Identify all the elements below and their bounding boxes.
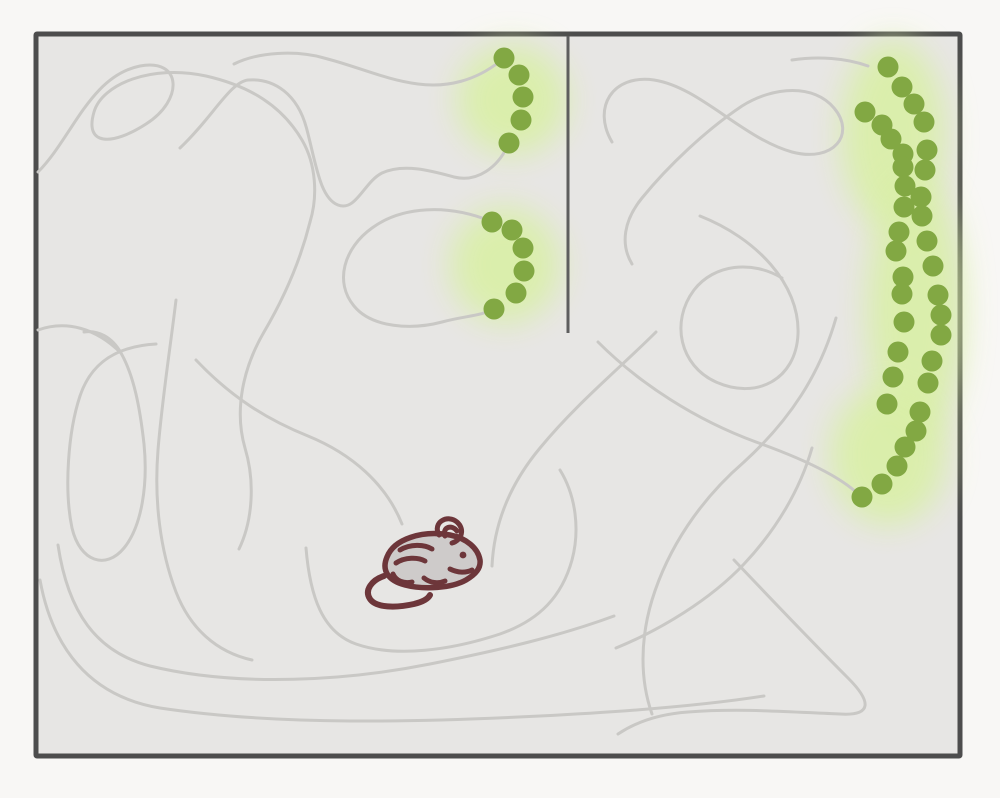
pellet-dot	[931, 305, 952, 326]
pellet-dot	[499, 133, 520, 154]
arena-diagram	[0, 0, 1000, 798]
pellet-dot	[877, 394, 898, 415]
pellet-dot	[893, 157, 914, 178]
pellet-dot	[506, 283, 527, 304]
pellet-dot	[894, 312, 915, 333]
pellet-dot	[892, 284, 913, 305]
pellet-dot	[883, 367, 904, 388]
pellet-dot	[855, 102, 876, 123]
pellet-dot	[514, 261, 535, 282]
pellet-dot	[878, 57, 899, 78]
pellet-dot	[912, 206, 933, 227]
pellet-dot	[895, 437, 916, 458]
pellet-dot	[502, 220, 523, 241]
pellet-dot	[887, 456, 908, 477]
pellet-dot	[928, 285, 949, 306]
pellet-dot	[918, 373, 939, 394]
pellet-dot	[915, 160, 936, 181]
pellet-dot	[852, 487, 873, 508]
pellet-dot	[914, 112, 935, 133]
pellet-dot	[513, 238, 534, 259]
mouse-arena-figure	[0, 0, 1000, 798]
pellet-dot	[494, 48, 515, 69]
pellet-dot	[910, 402, 931, 423]
pellet-dot	[923, 256, 944, 277]
pellet-dot	[889, 222, 910, 243]
pellet-dot	[872, 474, 893, 495]
pellet-dot	[917, 140, 938, 161]
pellet-dot	[886, 241, 907, 262]
pellet-dot	[484, 299, 505, 320]
pellet-dot	[922, 351, 943, 372]
pellet-dot	[917, 231, 938, 252]
pellet-dot	[888, 342, 909, 363]
pellet-dot	[482, 212, 503, 233]
pellet-dot	[892, 77, 913, 98]
pellet-dot	[511, 110, 532, 131]
pellet-dot	[931, 325, 952, 346]
pellet-dot	[513, 87, 534, 108]
pellet-dot	[894, 197, 915, 218]
mouse-eye	[460, 552, 467, 559]
pellet-dot	[509, 65, 530, 86]
pellet-dot	[904, 94, 925, 115]
